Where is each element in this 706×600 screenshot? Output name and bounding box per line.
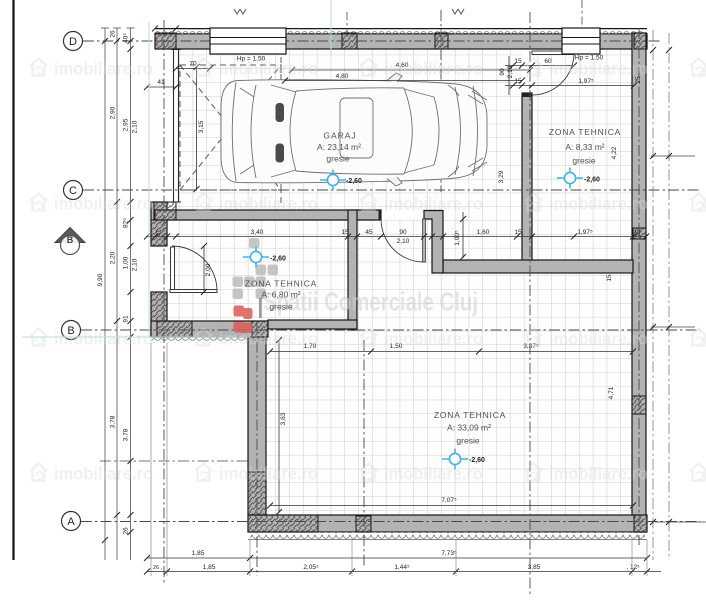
svg-text:2,10: 2,10 xyxy=(397,238,410,245)
svg-text:B: B xyxy=(67,235,74,245)
svg-text:, 26 ,: , 26 , xyxy=(150,565,163,571)
svg-text:41: 41 xyxy=(156,229,163,237)
svg-text:2,20: 2,20 xyxy=(110,251,117,264)
svg-text:40⁵: 40⁵ xyxy=(123,33,130,43)
svg-text:41: 41 xyxy=(157,79,165,86)
svg-text:91: 91 xyxy=(123,315,130,323)
svg-text:1,44⁵: 1,44⁵ xyxy=(394,564,410,571)
svg-text:-2,60: -2,60 xyxy=(469,457,485,464)
svg-text:2,10: 2,10 xyxy=(132,258,139,271)
svg-text:3,29: 3,29 xyxy=(498,170,505,183)
svg-text:-2,60: -2,60 xyxy=(270,256,286,263)
svg-text:A: 33,09 m²: A: 33,09 m² xyxy=(447,423,491,433)
svg-text:26: 26 xyxy=(123,527,130,535)
svg-text:2,10: 2,10 xyxy=(132,120,139,133)
svg-text:2,05⁵: 2,05⁵ xyxy=(303,564,319,571)
svg-text:90: 90 xyxy=(399,229,407,236)
svg-text:7,73⁵: 7,73⁵ xyxy=(441,550,457,557)
svg-text:25: 25 xyxy=(635,229,642,237)
svg-text:, 12⁵: , 12⁵ xyxy=(626,564,640,571)
svg-text:4,80: 4,80 xyxy=(336,73,349,80)
svg-text:15: 15 xyxy=(514,58,522,65)
svg-text:ZONA TEHNICA: ZONA TEHNICA xyxy=(434,410,506,420)
svg-text:A: 23,14 m²: A: 23,14 m² xyxy=(317,142,361,152)
svg-text:1,85: 1,85 xyxy=(192,550,205,557)
svg-text:1,97⁵: 1,97⁵ xyxy=(577,229,593,236)
svg-text:D: D xyxy=(69,36,77,48)
svg-text:1,60: 1,60 xyxy=(477,229,490,236)
svg-text:3,63: 3,63 xyxy=(280,412,287,425)
svg-text:15: 15 xyxy=(606,274,613,282)
svg-text:1,00⁵: 1,00⁵ xyxy=(454,230,461,246)
svg-text:45: 45 xyxy=(365,229,373,236)
svg-text:2,90: 2,90 xyxy=(110,106,117,119)
svg-text:ZONA TEHNICA: ZONA TEHNICA xyxy=(245,279,317,289)
svg-text:A: 6,80 m²: A: 6,80 m² xyxy=(261,290,300,300)
svg-text:gresie: gresie xyxy=(572,156,595,166)
svg-text:A: A xyxy=(67,516,75,528)
svg-text:A: 8,33 m²: A: 8,33 m² xyxy=(565,142,604,152)
svg-text:ZONA TEHNICA: ZONA TEHNICA xyxy=(549,127,621,137)
svg-text:4,22: 4,22 xyxy=(611,146,618,159)
svg-text:4,71: 4,71 xyxy=(608,386,615,399)
svg-text:1,85: 1,85 xyxy=(203,564,216,571)
svg-text:GARAJ: GARAJ xyxy=(323,131,356,141)
svg-text:2,00: 2,00 xyxy=(205,263,212,276)
svg-text:15: 15 xyxy=(341,229,349,236)
svg-text:1,00: 1,00 xyxy=(123,256,130,269)
svg-text:3,40: 3,40 xyxy=(251,229,264,236)
svg-text:26: 26 xyxy=(110,30,117,38)
svg-text:2,10: 2,10 xyxy=(507,65,514,78)
svg-text:gresie: gresie xyxy=(269,302,292,312)
svg-text:82⁵: 82⁵ xyxy=(123,218,130,228)
svg-text:3,15: 3,15 xyxy=(198,120,205,133)
svg-text:gresie: gresie xyxy=(326,154,349,164)
svg-text:2,95: 2,95 xyxy=(123,118,130,131)
svg-text:90: 90 xyxy=(499,68,506,76)
svg-text:15: 15 xyxy=(514,229,522,236)
svg-text:1,97⁵: 1,97⁵ xyxy=(578,78,594,85)
svg-text:3,78: 3,78 xyxy=(110,415,117,428)
svg-text:-2,60: -2,60 xyxy=(584,177,600,184)
svg-text:7,07⁵: 7,07⁵ xyxy=(441,497,457,504)
svg-text:9,90: 9,90 xyxy=(97,273,104,286)
svg-text:gresie: gresie xyxy=(456,436,479,446)
svg-text:3,78: 3,78 xyxy=(123,428,130,441)
svg-text:-2,60: -2,60 xyxy=(346,178,362,185)
svg-text:3,85: 3,85 xyxy=(528,564,541,571)
